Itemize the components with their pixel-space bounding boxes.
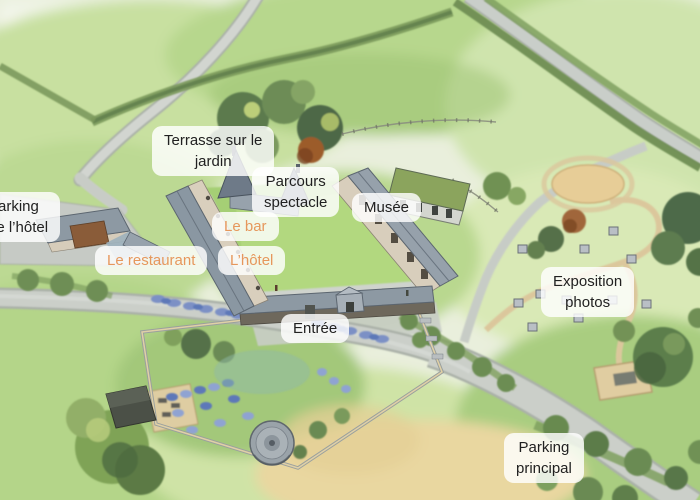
- map-label-musee: Musée: [352, 193, 421, 222]
- label-line: photos: [553, 292, 622, 313]
- label-line: Parcours: [264, 171, 327, 192]
- label-line: L’hôtel: [230, 250, 273, 271]
- map-label-l-hotel: L’hôtel: [218, 246, 285, 275]
- label-line: Entrée: [293, 318, 337, 339]
- map-labels: Parking de l’hôtel Terrasse sur le jardi…: [0, 0, 700, 500]
- map-label-parcours: Parcours spectacle: [252, 167, 339, 217]
- label-line: Parking: [516, 437, 572, 458]
- label-line: Exposition: [553, 271, 622, 292]
- label-line: Musée: [364, 197, 409, 218]
- label-line: de l’hôtel: [0, 217, 48, 238]
- map-label-exposition: Exposition photos: [541, 267, 634, 317]
- label-line: jardin: [164, 151, 262, 172]
- map-label-entree: Entrée: [281, 314, 349, 343]
- map-label-le-bar: Le bar: [212, 212, 279, 241]
- label-line: Le restaurant: [107, 250, 195, 271]
- map-label-parking-hotel: Parking de l’hôtel: [0, 192, 60, 242]
- label-line: Parking: [0, 196, 48, 217]
- label-line: Le bar: [224, 216, 267, 237]
- map-label-le-restaurant: Le restaurant: [95, 246, 207, 275]
- label-line: spectacle: [264, 192, 327, 213]
- map-label-parking-principal: Parking principal: [504, 433, 584, 483]
- label-line: Terrasse sur le: [164, 130, 262, 151]
- label-line: principal: [516, 458, 572, 479]
- illustrated-estate-map: Parking de l’hôtel Terrasse sur le jardi…: [0, 0, 700, 500]
